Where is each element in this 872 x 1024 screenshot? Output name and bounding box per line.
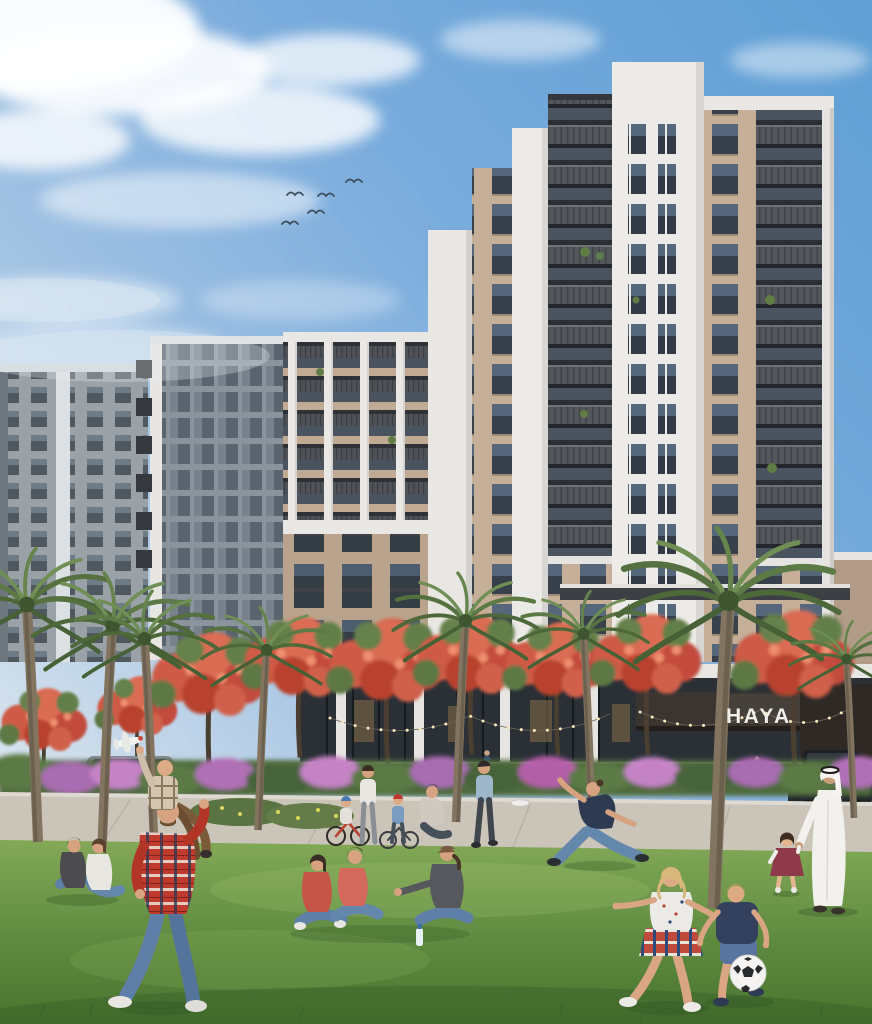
football <box>730 955 766 992</box>
architectural-rendering: HAYA <box>0 0 872 1024</box>
tower-left-glass <box>136 336 302 660</box>
scene-canvas <box>0 0 872 1024</box>
haya-sign: HAYA <box>726 704 846 730</box>
frisbee <box>511 800 529 806</box>
